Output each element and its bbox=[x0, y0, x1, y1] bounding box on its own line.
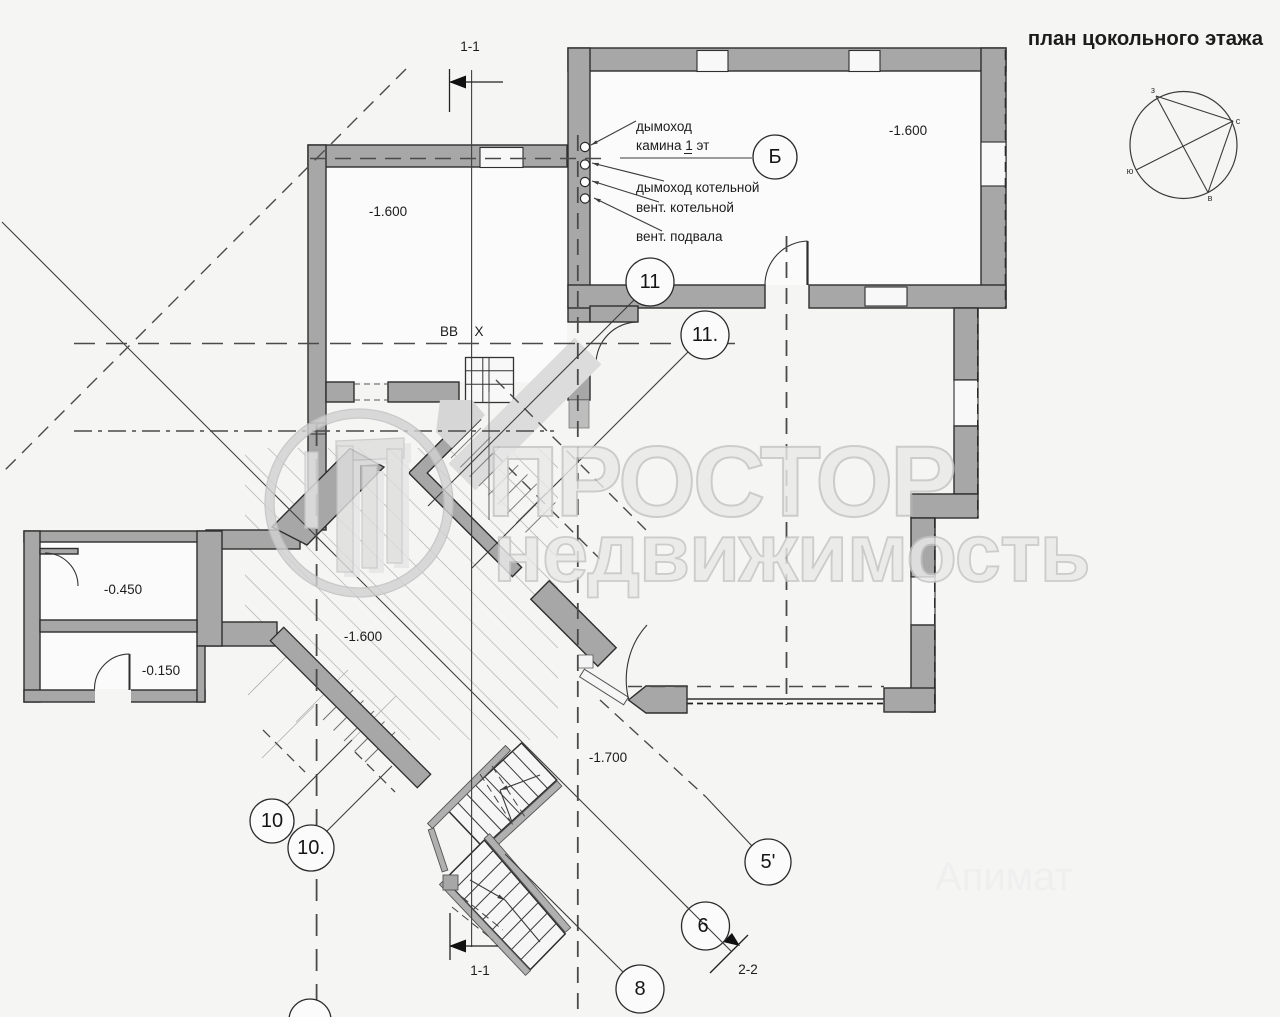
svg-text:6: 6 bbox=[697, 915, 708, 937]
svg-text:вент. котельной: вент. котельной bbox=[636, 200, 734, 215]
svg-text:в: в bbox=[1208, 193, 1213, 203]
svg-text:5': 5' bbox=[761, 851, 776, 873]
svg-text:-0.450: -0.450 bbox=[104, 582, 142, 597]
svg-text:10: 10 bbox=[261, 810, 283, 832]
svg-text:10.: 10. bbox=[297, 837, 325, 859]
svg-text:2-2: 2-2 bbox=[738, 962, 758, 977]
svg-text:ю: ю bbox=[1127, 166, 1134, 176]
svg-text:ВВ: ВВ bbox=[440, 324, 458, 339]
svg-text:-1.600: -1.600 bbox=[369, 204, 407, 219]
svg-text:8: 8 bbox=[634, 978, 645, 1000]
svg-text:дымоход котельной: дымоход котельной bbox=[636, 180, 759, 195]
svg-text:з: з bbox=[1151, 85, 1155, 95]
svg-text:1-1: 1-1 bbox=[470, 963, 490, 978]
svg-text:X: X bbox=[474, 324, 483, 339]
svg-text:Б: Б bbox=[768, 146, 781, 168]
svg-text:с: с bbox=[1236, 116, 1241, 126]
svg-text:-1.600: -1.600 bbox=[344, 629, 382, 644]
svg-text:Апимат: Апимат bbox=[935, 855, 1073, 899]
svg-text:-0.150: -0.150 bbox=[142, 663, 180, 678]
svg-text:-1.700: -1.700 bbox=[589, 750, 627, 765]
svg-text:вент. подвала: вент. подвала bbox=[636, 229, 723, 244]
svg-text:дымоход: дымоход bbox=[636, 119, 692, 134]
svg-text:-1.600: -1.600 bbox=[889, 123, 927, 138]
svg-text:1-1: 1-1 bbox=[460, 39, 480, 54]
svg-text:11: 11 bbox=[640, 271, 661, 293]
svg-text:недвижимость: недвижимость bbox=[493, 506, 1090, 599]
svg-text:11.: 11. bbox=[692, 324, 718, 346]
svg-text:камина 1 эт: камина 1 эт bbox=[636, 138, 709, 153]
svg-text:план цокольного этажа: план цокольного этажа bbox=[1028, 28, 1264, 50]
